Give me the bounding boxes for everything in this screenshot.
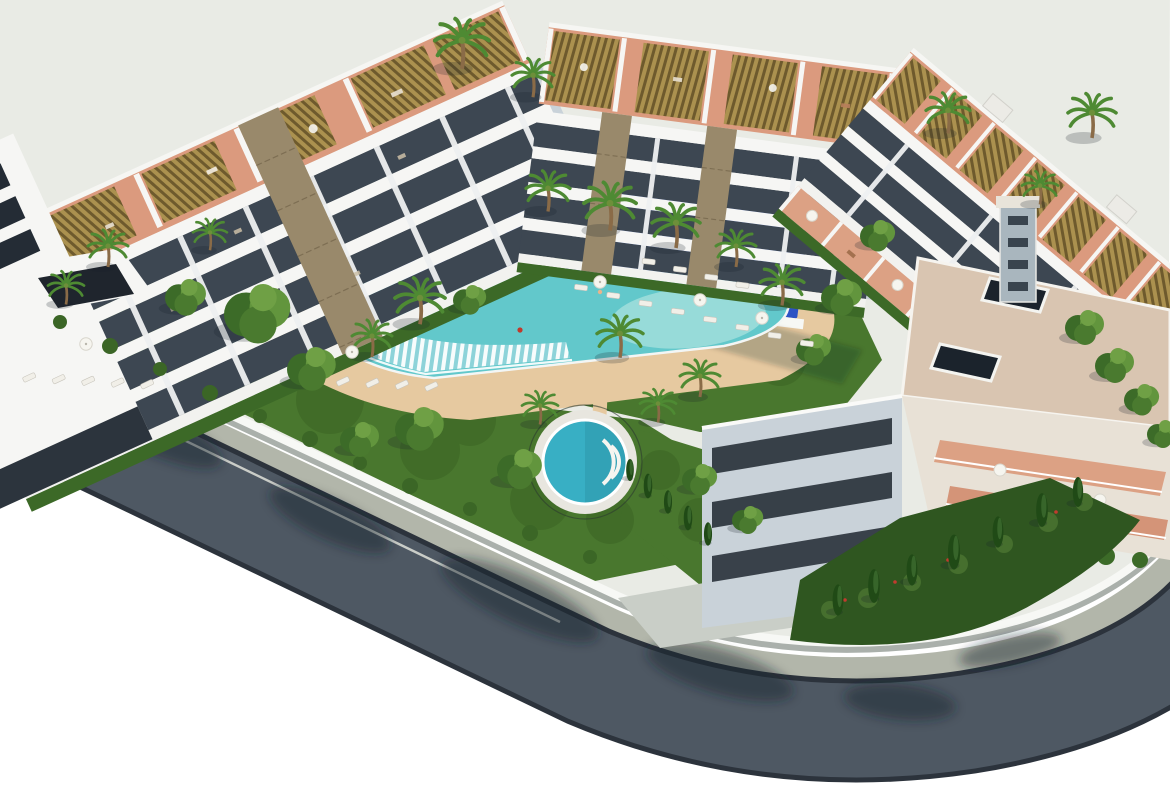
stair-core (996, 196, 1040, 302)
architectural-render-frame (0, 0, 1170, 785)
swimmer (517, 327, 522, 332)
render-canvas (0, 0, 1170, 785)
swimmer (598, 290, 602, 294)
